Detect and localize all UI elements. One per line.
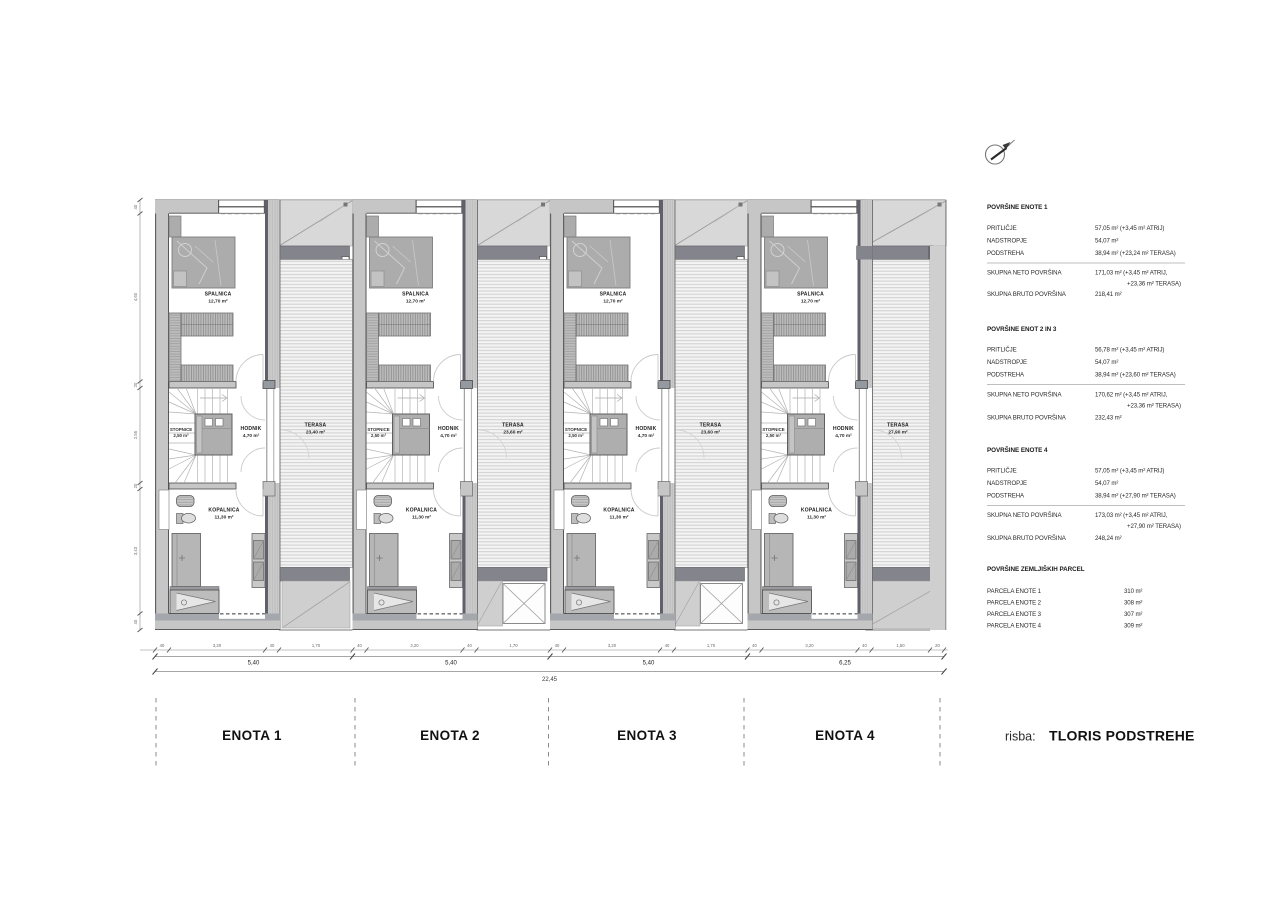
svg-text:SPALNICA: SPALNICA [600, 292, 627, 298]
svg-text:40: 40 [555, 643, 560, 648]
svg-text:POVRŠINE ZEMLJIŠKIH PARCEL: POVRŠINE ZEMLJIŠKIH PARCEL [987, 564, 1085, 573]
svg-text:2,50 m²: 2,50 m² [173, 433, 189, 438]
svg-text:57,05 m² (+3,45 m² ATRIJ): 57,05 m² (+3,45 m² ATRIJ) [1095, 225, 1164, 232]
svg-text:40: 40 [133, 619, 138, 624]
svg-text:5,40: 5,40 [643, 661, 655, 667]
svg-text:+23,36 m² TERASA): +23,36 m² TERASA) [1127, 281, 1181, 288]
svg-text:HODNIK: HODNIK [636, 426, 657, 432]
svg-text:SKUPNA NETO POVRŠINA: SKUPNA NETO POVRŠINA [987, 512, 1062, 519]
svg-text:12,70 m²: 12,70 m² [406, 299, 426, 305]
svg-text:4,70 m²: 4,70 m² [243, 433, 260, 439]
svg-text:23,60 m²: 23,60 m² [701, 430, 721, 436]
svg-text:ENOTA 1: ENOTA 1 [222, 728, 282, 743]
svg-text:PARCELA ENOTE 2: PARCELA ENOTE 2 [987, 600, 1042, 607]
svg-text:PARCELA ENOTE 3: PARCELA ENOTE 3 [987, 611, 1042, 618]
svg-text:STOPNICE: STOPNICE [762, 427, 784, 432]
svg-text:STOPNICE: STOPNICE [367, 427, 389, 432]
svg-text:40: 40 [862, 643, 867, 648]
svg-text:NADSTROPJE: NADSTROPJE [987, 480, 1027, 487]
svg-text:38,94 m² (+23,24 m² TERASA): 38,94 m² (+23,24 m² TERASA) [1095, 250, 1176, 257]
svg-text:5,40: 5,40 [445, 661, 457, 667]
svg-text:3,43: 3,43 [133, 546, 138, 555]
svg-text:3,20: 3,20 [805, 643, 814, 648]
svg-text:SKUPNA BRUTO POVRŠINA: SKUPNA BRUTO POVRŠINA [987, 415, 1067, 422]
svg-text:54,07 m²: 54,07 m² [1095, 480, 1118, 487]
svg-text:ENOTA 4: ENOTA 4 [815, 728, 875, 743]
svg-text:SKUPNA NETO POVRŠINA: SKUPNA NETO POVRŠINA [987, 270, 1062, 277]
svg-text:310 m²: 310 m² [1124, 588, 1142, 595]
svg-text:STOPNICE: STOPNICE [565, 427, 587, 432]
svg-text:23,60 m²: 23,60 m² [503, 430, 523, 436]
svg-text:HODNIK: HODNIK [241, 426, 262, 432]
svg-text:TERASA: TERASA [700, 423, 722, 429]
svg-text:SPALNICA: SPALNICA [205, 292, 232, 298]
svg-text:POVRŠINE ENOTE 1: POVRŠINE ENOTE 1 [987, 202, 1048, 211]
svg-text:HODNIK: HODNIK [833, 426, 854, 432]
svg-text:ENOTA 3: ENOTA 3 [617, 728, 677, 743]
svg-text:KOPALNICA: KOPALNICA [208, 508, 239, 514]
svg-text:3,20: 3,20 [213, 643, 222, 648]
svg-text:57,05 m² (+3,45 m² ATRIJ): 57,05 m² (+3,45 m² ATRIJ) [1095, 468, 1164, 475]
svg-text:22,45: 22,45 [542, 677, 558, 683]
svg-text:40: 40 [133, 204, 138, 209]
svg-text:SPALNICA: SPALNICA [797, 292, 824, 298]
svg-text:3,20: 3,20 [608, 643, 617, 648]
svg-text:40: 40 [357, 643, 362, 648]
svg-text:risba:: risba: [1005, 730, 1036, 744]
svg-text:23,40 m²: 23,40 m² [306, 430, 326, 436]
svg-text:TERASA: TERASA [305, 423, 327, 429]
svg-text:1,50: 1,50 [896, 643, 905, 648]
svg-text:20: 20 [935, 643, 940, 648]
svg-text:PRITLIČJE: PRITLIČJE [987, 468, 1017, 475]
svg-text:KOPALNICA: KOPALNICA [406, 508, 437, 514]
svg-text:KOPALNICA: KOPALNICA [801, 508, 832, 514]
svg-text:TLORIS PODSTREHE: TLORIS PODSTREHE [1049, 728, 1195, 744]
svg-text:309 m²: 309 m² [1124, 623, 1142, 630]
svg-text:4,70 m²: 4,70 m² [835, 433, 852, 439]
svg-text:40: 40 [752, 643, 757, 648]
svg-text:40: 40 [467, 643, 472, 648]
svg-text:56,78 m² (+3,45 m² ATRIJ): 56,78 m² (+3,45 m² ATRIJ) [1095, 347, 1164, 354]
svg-text:11,30 m²: 11,30 m² [412, 515, 431, 521]
svg-text:POVRŠINE ENOTE 4: POVRŠINE ENOTE 4 [987, 445, 1048, 454]
svg-text:HODNIK: HODNIK [438, 426, 459, 432]
svg-text:3,20: 3,20 [410, 643, 419, 648]
svg-text:PRITLIČJE: PRITLIČJE [987, 347, 1017, 354]
svg-text:+23,36 m² TERASA): +23,36 m² TERASA) [1127, 403, 1181, 410]
svg-text:4,70 m²: 4,70 m² [440, 433, 457, 439]
svg-text:4,70 m²: 4,70 m² [638, 433, 655, 439]
svg-text:NADSTROPJE: NADSTROPJE [987, 238, 1027, 245]
svg-text:54,07 m²: 54,07 m² [1095, 238, 1118, 245]
svg-text:1,70: 1,70 [312, 643, 321, 648]
svg-text:POVRŠINE ENOT 2 IN 3: POVRŠINE ENOT 2 IN 3 [987, 324, 1057, 333]
svg-text:40: 40 [160, 643, 165, 648]
svg-text:PODSTREHA: PODSTREHA [987, 493, 1025, 500]
svg-text:307 m²: 307 m² [1124, 611, 1142, 618]
svg-text:PRITLIČJE: PRITLIČJE [987, 225, 1017, 232]
svg-text:+27,90 m² TERASA): +27,90 m² TERASA) [1127, 523, 1181, 530]
svg-text:12,70 m²: 12,70 m² [603, 299, 623, 305]
svg-text:5,40: 5,40 [248, 661, 260, 667]
svg-text:SKUPNA BRUTO POVRŠINA: SKUPNA BRUTO POVRŠINA [987, 535, 1067, 542]
svg-text:40: 40 [665, 643, 670, 648]
svg-text:12,70 m²: 12,70 m² [801, 299, 821, 305]
svg-text:170,62 m² (+3,45 m² ATRIJ,: 170,62 m² (+3,45 m² ATRIJ, [1095, 392, 1168, 399]
svg-text:SKUPNA BRUTO POVRŠINA: SKUPNA BRUTO POVRŠINA [987, 291, 1067, 298]
svg-text:27,90 m²: 27,90 m² [888, 430, 908, 436]
svg-text:1,70: 1,70 [509, 643, 518, 648]
svg-text:2,50 m²: 2,50 m² [766, 433, 782, 438]
svg-text:171,03 m² (+3,45 m² ATRIJ,: 171,03 m² (+3,45 m² ATRIJ, [1095, 270, 1168, 277]
svg-text:SPALNICA: SPALNICA [402, 292, 429, 298]
svg-text:2,55: 2,55 [133, 430, 138, 439]
svg-text:4,60: 4,60 [133, 292, 138, 301]
svg-text:173,03 m² (+3,45 m² ATRIJ,: 173,03 m² (+3,45 m² ATRIJ, [1095, 512, 1168, 519]
svg-text:218,41 m²: 218,41 m² [1095, 291, 1122, 298]
svg-text:PARCELA ENOTE 1: PARCELA ENOTE 1 [987, 588, 1042, 595]
svg-text:248,24 m²: 248,24 m² [1095, 535, 1122, 542]
svg-text:11,30 m²: 11,30 m² [215, 515, 234, 521]
svg-text:2,50 m²: 2,50 m² [371, 433, 387, 438]
svg-text:KOPALNICA: KOPALNICA [603, 508, 634, 514]
svg-text:2,50 m²: 2,50 m² [568, 433, 584, 438]
svg-text:20: 20 [133, 382, 138, 387]
svg-text:TERASA: TERASA [887, 423, 909, 429]
svg-text:38,94 m² (+23,60 m² TERASA): 38,94 m² (+23,60 m² TERASA) [1095, 372, 1176, 379]
svg-text:PODSTREHA: PODSTREHA [987, 372, 1025, 379]
svg-text:20: 20 [133, 483, 138, 488]
svg-text:54,07 m²: 54,07 m² [1095, 359, 1118, 366]
svg-text:NADSTROPJE: NADSTROPJE [987, 359, 1027, 366]
svg-text:11,30 m²: 11,30 m² [807, 515, 826, 521]
svg-text:12,70 m²: 12,70 m² [208, 299, 228, 305]
svg-text:11,30 m²: 11,30 m² [610, 515, 629, 521]
svg-text:6,25: 6,25 [839, 661, 851, 667]
svg-text:SKUPNA NETO POVRŠINA: SKUPNA NETO POVRŠINA [987, 392, 1062, 399]
svg-text:TERASA: TERASA [502, 423, 524, 429]
svg-text:PODSTREHA: PODSTREHA [987, 250, 1025, 257]
svg-text:40: 40 [270, 643, 275, 648]
svg-text:ENOTA 2: ENOTA 2 [420, 728, 480, 743]
svg-text:PARCELA ENOTE 4: PARCELA ENOTE 4 [987, 623, 1042, 630]
svg-text:STOPNICE: STOPNICE [170, 427, 192, 432]
svg-text:308 m²: 308 m² [1124, 600, 1142, 607]
svg-text:1,70: 1,70 [707, 643, 716, 648]
svg-text:38,94 m² (+27,90 m² TERASA): 38,94 m² (+27,90 m² TERASA) [1095, 493, 1176, 500]
svg-text:232,43 m²: 232,43 m² [1095, 415, 1122, 422]
